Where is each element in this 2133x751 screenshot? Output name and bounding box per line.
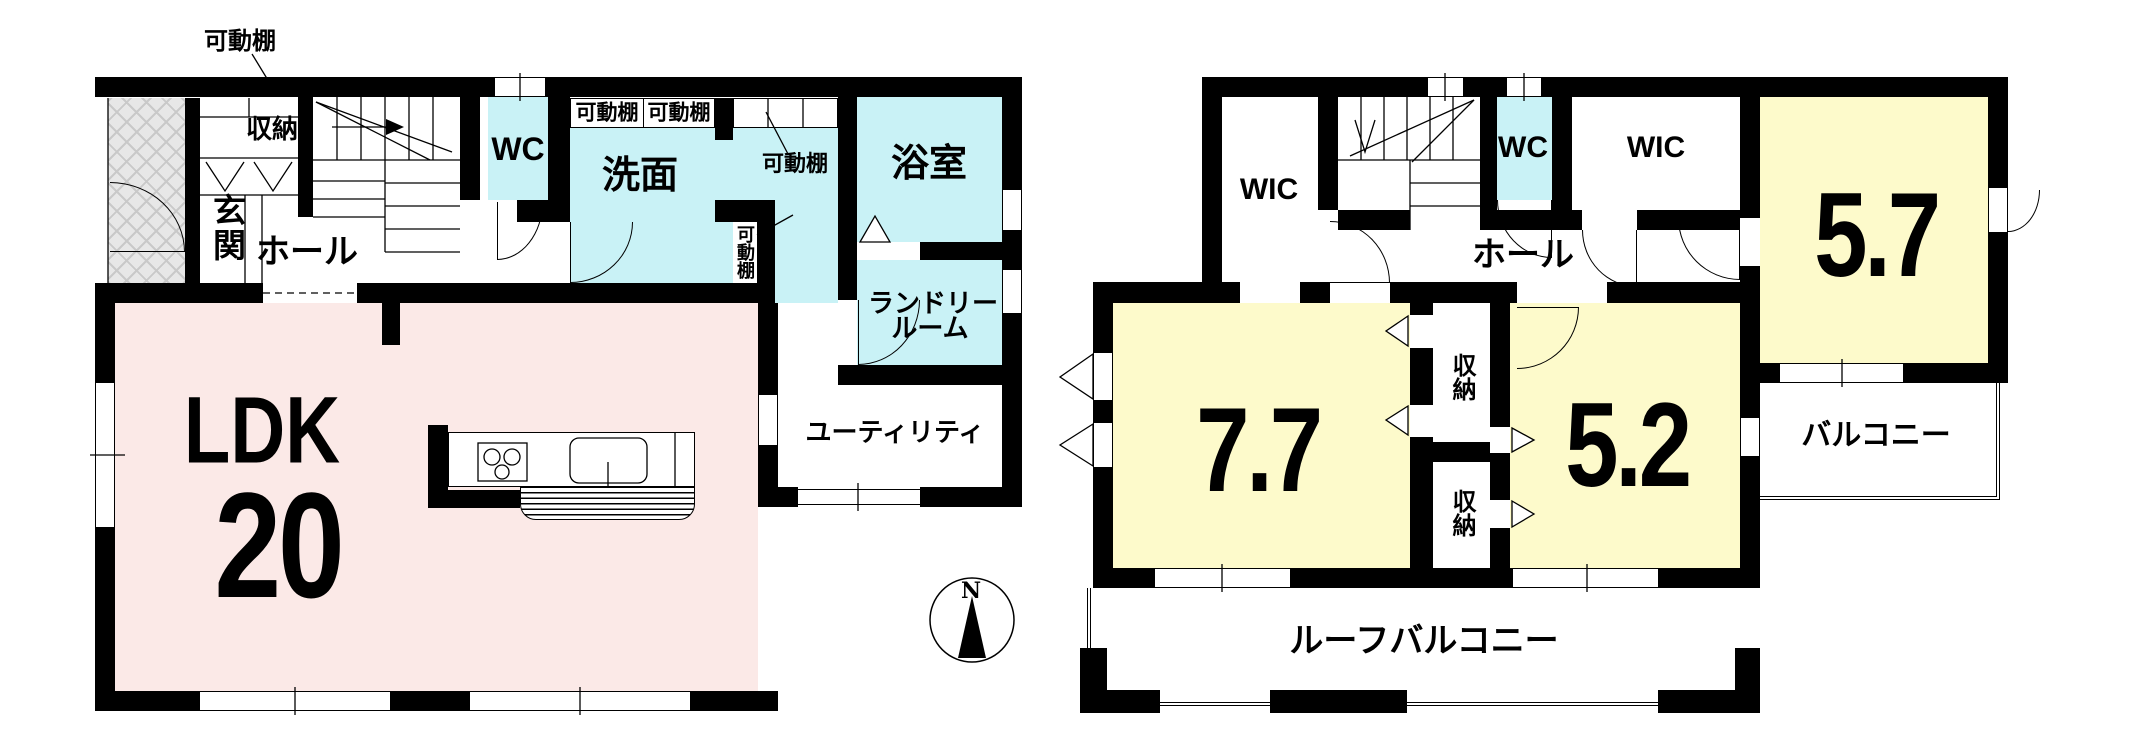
bathroom-label: 浴室 — [891, 145, 967, 183]
wc2-label: WC — [1498, 133, 1548, 163]
wall — [357, 283, 775, 303]
closet-door-gap — [1410, 405, 1433, 437]
wall — [545, 77, 1022, 97]
wall — [95, 283, 263, 303]
door-opening — [758, 395, 778, 445]
storage-lower-label: 収納 — [1449, 489, 1473, 537]
wall — [1093, 282, 1240, 303]
railing-post — [1270, 690, 1407, 713]
window — [200, 691, 390, 711]
kitchen-counter — [448, 432, 695, 487]
wall — [920, 487, 1022, 507]
shelf-box-label: 可動棚 — [648, 103, 711, 124]
railing-post — [1080, 690, 1160, 713]
wall — [460, 97, 480, 200]
wall — [838, 365, 1022, 385]
wall — [758, 487, 798, 507]
wall — [1202, 77, 1428, 97]
roof-balcony-railing — [1160, 698, 1270, 706]
balcony-door — [1740, 418, 1760, 456]
window — [95, 383, 115, 527]
roof-balcony-label: ルーフバルコニー — [1289, 624, 1558, 658]
wall — [1988, 232, 2008, 383]
window — [495, 77, 545, 97]
wic-right-label: WIC — [1627, 133, 1685, 163]
wall — [1740, 456, 1760, 588]
window — [1093, 423, 1113, 467]
window — [1507, 77, 1541, 97]
kitchen-wall — [428, 490, 520, 508]
wc-label: WC — [491, 133, 544, 165]
storage-upper-label: 収納 — [1449, 353, 1473, 401]
window — [798, 489, 920, 505]
window — [1513, 568, 1658, 588]
wall — [1093, 282, 1113, 353]
shelf-callout-label: 可動棚 — [762, 153, 828, 175]
wall — [1093, 568, 1155, 588]
wall — [95, 527, 115, 691]
storage-label: 収納 — [246, 116, 298, 142]
wall — [1463, 77, 1507, 97]
room-7-7-door-arc — [1330, 221, 1390, 283]
room-5-7-door-arc — [1678, 218, 1740, 280]
wall — [1318, 97, 1338, 210]
shelf-niche-label: 可動棚 — [736, 225, 754, 279]
wall — [715, 98, 733, 140]
wall — [1002, 77, 1022, 190]
wall — [382, 303, 400, 345]
hall-label: ホール — [256, 235, 358, 269]
wall — [1093, 400, 1113, 423]
window — [470, 691, 690, 711]
wall — [95, 691, 200, 711]
wc-door-arc — [497, 202, 543, 260]
washroom-label: 洗面 — [602, 157, 678, 195]
wall — [1541, 77, 2008, 97]
window — [1093, 353, 1113, 400]
wall — [298, 97, 313, 217]
hall2-label: ホール — [1472, 238, 1574, 272]
window — [1155, 568, 1290, 588]
casement-window-arc — [2008, 190, 2040, 232]
window — [1988, 188, 2008, 232]
wall — [95, 77, 495, 97]
roof-balcony-railing — [1407, 698, 1658, 706]
wall — [390, 691, 470, 711]
railing-post — [1735, 648, 1760, 693]
shelf-closet — [733, 98, 838, 128]
shelf-top-label: 可動棚 — [204, 30, 276, 54]
wall — [1290, 568, 1513, 588]
room-5-7-label: 5.7 — [1814, 175, 1938, 295]
closet-door-gap — [1490, 500, 1510, 528]
wic-right-door-arc — [1582, 230, 1637, 287]
window — [1002, 190, 1022, 230]
wall — [715, 200, 775, 222]
window — [1002, 270, 1022, 313]
entrance-label: 玄関 — [211, 193, 244, 263]
wall — [1490, 282, 1510, 427]
wall — [757, 222, 775, 303]
wall — [1002, 230, 1022, 270]
wall — [548, 97, 570, 200]
utility-label: ユーティリティ — [806, 419, 985, 445]
wall — [1202, 77, 1222, 303]
kitchen-ledge — [520, 487, 695, 520]
laundry-label-line2: ルーム — [891, 315, 968, 341]
compass-n-label: N — [961, 578, 981, 604]
balcony-label: バルコニー — [1801, 421, 1950, 451]
washroom-passage-floor — [775, 283, 838, 303]
wall — [1300, 282, 1330, 303]
wall — [1410, 348, 1433, 405]
wall — [1410, 282, 1433, 315]
closet-door-gap — [1410, 315, 1433, 348]
wall — [1552, 97, 1572, 210]
room-7-7-label: 7.7 — [1196, 390, 1320, 510]
shelf-box-label: 可動棚 — [576, 103, 639, 124]
compass: N — [930, 578, 1014, 662]
wic-left-label: WIC — [1240, 175, 1298, 205]
wall — [838, 77, 857, 300]
room-5-2-label: 5.2 — [1565, 385, 1689, 505]
ldk-size-label: 20 — [214, 470, 341, 620]
wall — [1988, 77, 2008, 188]
window — [1428, 77, 1463, 97]
wall — [185, 98, 200, 283]
floorplan-canvas: 可動棚 収納 玄関 ホール WC 可動棚 可動棚 洗面 可動棚 可動棚 浴室 ラ… — [0, 0, 2133, 751]
railing-post — [1658, 690, 1760, 713]
roof-balcony-railing — [1087, 588, 1097, 652]
wall — [690, 691, 778, 711]
window — [1780, 363, 1903, 383]
wall — [1002, 313, 1022, 507]
wall — [1760, 363, 1780, 383]
wall — [1740, 77, 1760, 218]
wall — [920, 242, 1003, 260]
closet-door-gap — [1490, 427, 1510, 453]
wall — [758, 303, 778, 395]
wall — [1740, 266, 1760, 418]
